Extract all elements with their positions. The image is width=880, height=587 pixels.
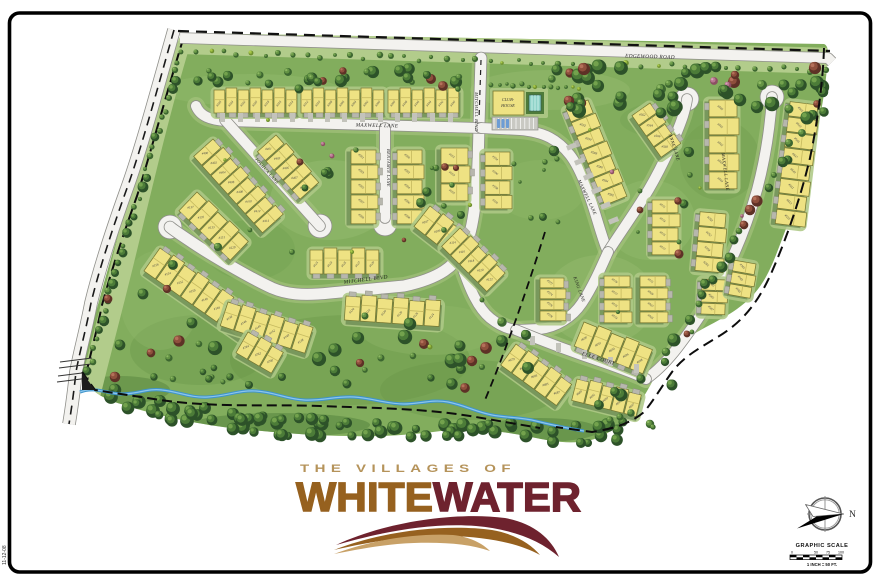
svg-text:#406: #406 — [228, 180, 235, 184]
svg-text:#407: #407 — [291, 176, 298, 180]
svg-text:MAXWELL LANE: MAXWELL LANE — [355, 123, 399, 130]
svg-text:#116: #116 — [459, 249, 466, 254]
svg-text:100: 100 — [838, 551, 844, 555]
svg-text:CLUB-: CLUB- — [502, 97, 515, 102]
svg-text:#564: #564 — [647, 123, 654, 127]
svg-text:75: 75 — [826, 551, 830, 555]
svg-text:#403: #403 — [274, 156, 281, 160]
svg-text:50: 50 — [814, 551, 818, 555]
svg-text:#414: #414 — [263, 219, 270, 223]
svg-text:GRAPHIC SCALE: GRAPHIC SCALE — [796, 543, 849, 549]
svg-text:#400: #400 — [202, 151, 209, 155]
svg-text:#412: #412 — [254, 209, 261, 213]
svg-text:BENJAMIN LANE: BENJAMIN LANE — [386, 149, 391, 187]
svg-text:N: N — [849, 510, 856, 520]
svg-text:#408: #408 — [236, 190, 243, 194]
svg-text:#114: #114 — [449, 240, 456, 245]
svg-text:#401: #401 — [265, 147, 272, 151]
svg-text:#410: #410 — [245, 199, 252, 203]
svg-text:11-12-08: 11-12-08 — [2, 545, 8, 565]
svg-text:#120: #120 — [477, 268, 484, 273]
svg-text:#566: #566 — [654, 134, 661, 138]
svg-text:#562: #562 — [639, 113, 646, 117]
svg-text:#122: #122 — [486, 277, 493, 282]
svg-text:#405: #405 — [283, 166, 290, 170]
svg-text:1 INCH = 50 FT.: 1 INCH = 50 FT. — [807, 562, 837, 567]
svg-text:WHITE: WHITE — [296, 474, 433, 520]
svg-text:#404: #404 — [219, 170, 226, 174]
svg-text:MITCHELL BLVD: MITCHELL BLVD — [474, 91, 479, 132]
svg-text:#568: #568 — [661, 144, 668, 148]
svg-text:HOUSE: HOUSE — [500, 103, 515, 108]
svg-text:#402: #402 — [210, 161, 217, 165]
svg-text:0: 0 — [791, 551, 793, 555]
svg-text:WATER: WATER — [433, 474, 581, 520]
svg-text:#118: #118 — [468, 259, 475, 264]
